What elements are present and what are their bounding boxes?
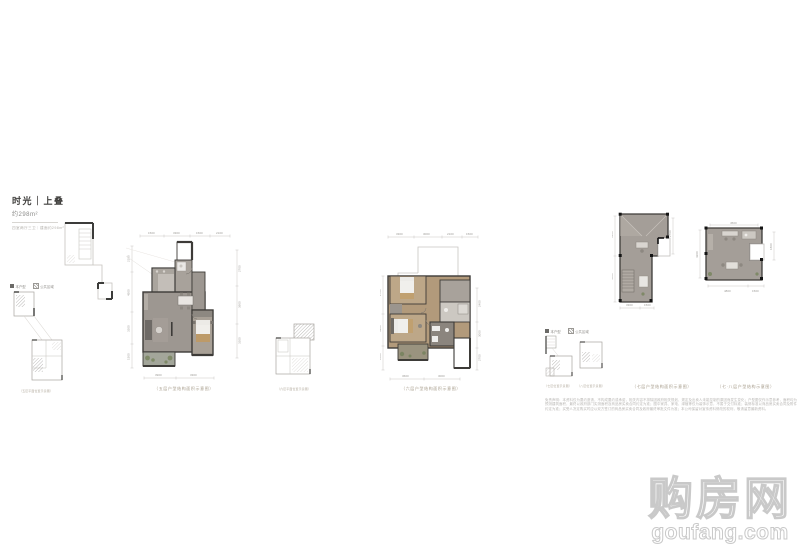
legend-label: 公共区域 bbox=[40, 284, 54, 289]
dim-label: 3600 bbox=[402, 374, 409, 378]
dim-label: 2700 bbox=[478, 354, 482, 361]
wardrobe bbox=[193, 311, 212, 317]
dim-label: 2700 bbox=[238, 265, 242, 272]
title-block: 时光｜上叠 约298m² 四室两厅三卫｜建面约298m² bbox=[12, 194, 65, 231]
tea-table bbox=[726, 262, 738, 269]
bed-master bbox=[408, 319, 413, 333]
dim-label: 3300 bbox=[612, 231, 614, 238]
bed bbox=[196, 334, 210, 342]
plan-caption: （六层户型结构面积示意图） bbox=[380, 386, 482, 392]
dim-label: 4500 bbox=[730, 222, 737, 225]
disclaimer-text: 免责声明：本资料仅为要约邀请，不构成要约或承诺，相关内容不排除因政府相关规划、规… bbox=[545, 398, 797, 411]
site-watermark: 购房网 goufang.com bbox=[648, 476, 792, 543]
legend-item: 本户型 bbox=[10, 284, 26, 289]
keyplan-floor5 bbox=[8, 290, 64, 386]
storage bbox=[440, 280, 470, 302]
dim-label: 3300 bbox=[238, 337, 242, 344]
dim-label: 3900 bbox=[238, 301, 242, 308]
closet bbox=[390, 304, 402, 314]
legend-swatch-hatch bbox=[33, 283, 39, 289]
dim-label: 1500 bbox=[644, 303, 651, 307]
dim-label: 3300 bbox=[396, 232, 403, 236]
roof-terrace bbox=[177, 242, 192, 260]
keyplan-floor8 bbox=[578, 336, 604, 378]
bed-2 bbox=[400, 293, 414, 299]
keyplan-caption: （八层位置示意图） bbox=[574, 384, 608, 388]
dim-label: 3900 bbox=[380, 325, 382, 332]
terrace bbox=[658, 238, 670, 256]
dim-label: 1500 bbox=[127, 353, 131, 360]
dim-label: 1500 bbox=[196, 231, 203, 235]
dim-label: 2700 bbox=[380, 289, 382, 296]
legend-label: 本户型 bbox=[551, 329, 561, 334]
dim-label: 3000 bbox=[438, 374, 445, 378]
stair bbox=[622, 270, 634, 292]
dim-label: 3300 bbox=[190, 373, 197, 377]
cabinet bbox=[144, 294, 148, 310]
dim-label: 3300 bbox=[626, 303, 633, 307]
desk bbox=[722, 231, 738, 236]
bathroom bbox=[742, 231, 756, 239]
terrace bbox=[454, 338, 470, 368]
dim-label: 3300 bbox=[127, 325, 131, 332]
plan-caption: （五层户型结构面积示意图） bbox=[126, 386, 242, 392]
floorplan-7f: 3300 4500 3300 1500 2700 bbox=[612, 210, 676, 312]
dim-label: 1500 bbox=[466, 232, 473, 236]
dim-label: 4500 bbox=[127, 289, 131, 296]
title-divider bbox=[12, 222, 58, 223]
floorplan-8f: 4500 4200 1800 4800 1500 bbox=[696, 222, 778, 294]
dim-label: 3300 bbox=[173, 231, 180, 235]
dim-label: 3900 bbox=[155, 373, 162, 377]
unit-subtitle: 四室两厅三卫｜建面约298m² bbox=[12, 226, 65, 231]
keyplan-legend-left: 本户型 公共区域 bbox=[10, 283, 54, 289]
bathroom-2 bbox=[430, 322, 454, 346]
dim-label: 3000 bbox=[478, 330, 482, 337]
dim-label: 2400 bbox=[478, 300, 482, 307]
closet bbox=[708, 234, 713, 250]
dim-label: 1800 bbox=[769, 243, 773, 250]
legend-swatch-solid bbox=[10, 284, 14, 288]
plan-caption: （七层户型结构面积示意图） bbox=[612, 384, 712, 390]
corridor bbox=[192, 272, 205, 310]
floorplan-page: { "header": { "title": "时光｜上叠", "area": … bbox=[0, 0, 800, 549]
desk bbox=[636, 242, 648, 248]
floorplan-6f: 3300 3000 2100 1500 2700 3900 1800 2400 … bbox=[380, 230, 482, 385]
watermark-en: goufang.com bbox=[648, 522, 792, 543]
dim-label: 4800 bbox=[724, 289, 731, 293]
floorplan-5f: 1500 3300 1500 2100 2100 4500 3300 1500 … bbox=[126, 228, 242, 386]
dim-label: 2100 bbox=[216, 231, 223, 235]
keyplan-caption: （六层平面位置示意图） bbox=[264, 387, 324, 391]
shower bbox=[458, 304, 468, 314]
dining-table bbox=[178, 296, 193, 305]
legend-label: 本户型 bbox=[16, 284, 26, 289]
dim-label: 1500 bbox=[148, 231, 155, 235]
keyplan-floor7 bbox=[542, 334, 576, 380]
watermark-cn: 购房网 bbox=[648, 476, 792, 521]
dim-label: 1800 bbox=[380, 353, 382, 360]
dim-label: 3000 bbox=[423, 232, 430, 236]
plan-caption: （七·八层户型结构示意图） bbox=[700, 384, 792, 390]
coffee-table bbox=[156, 327, 163, 334]
dim-label: 4200 bbox=[696, 251, 699, 258]
keyplan-caption: （五层平面位置示意图） bbox=[6, 389, 66, 393]
keyplan-floor6 bbox=[272, 322, 318, 382]
unit-title: 时光｜上叠 bbox=[12, 194, 65, 207]
legend-item: 公共区域 bbox=[33, 283, 54, 289]
dim-label: 2100 bbox=[447, 232, 454, 236]
terrace bbox=[750, 244, 764, 260]
legend-label: 公共区域 bbox=[575, 329, 589, 334]
tv bbox=[171, 322, 173, 336]
unit-area: 约298m² bbox=[12, 209, 65, 218]
entry-stair-outline bbox=[62, 219, 120, 311]
sofa bbox=[145, 320, 152, 340]
legend-swatch-solid bbox=[545, 329, 549, 333]
dim-label: 4500 bbox=[612, 273, 614, 280]
legend-item: 本户型 bbox=[545, 329, 561, 334]
dim-label: 1500 bbox=[752, 289, 759, 293]
